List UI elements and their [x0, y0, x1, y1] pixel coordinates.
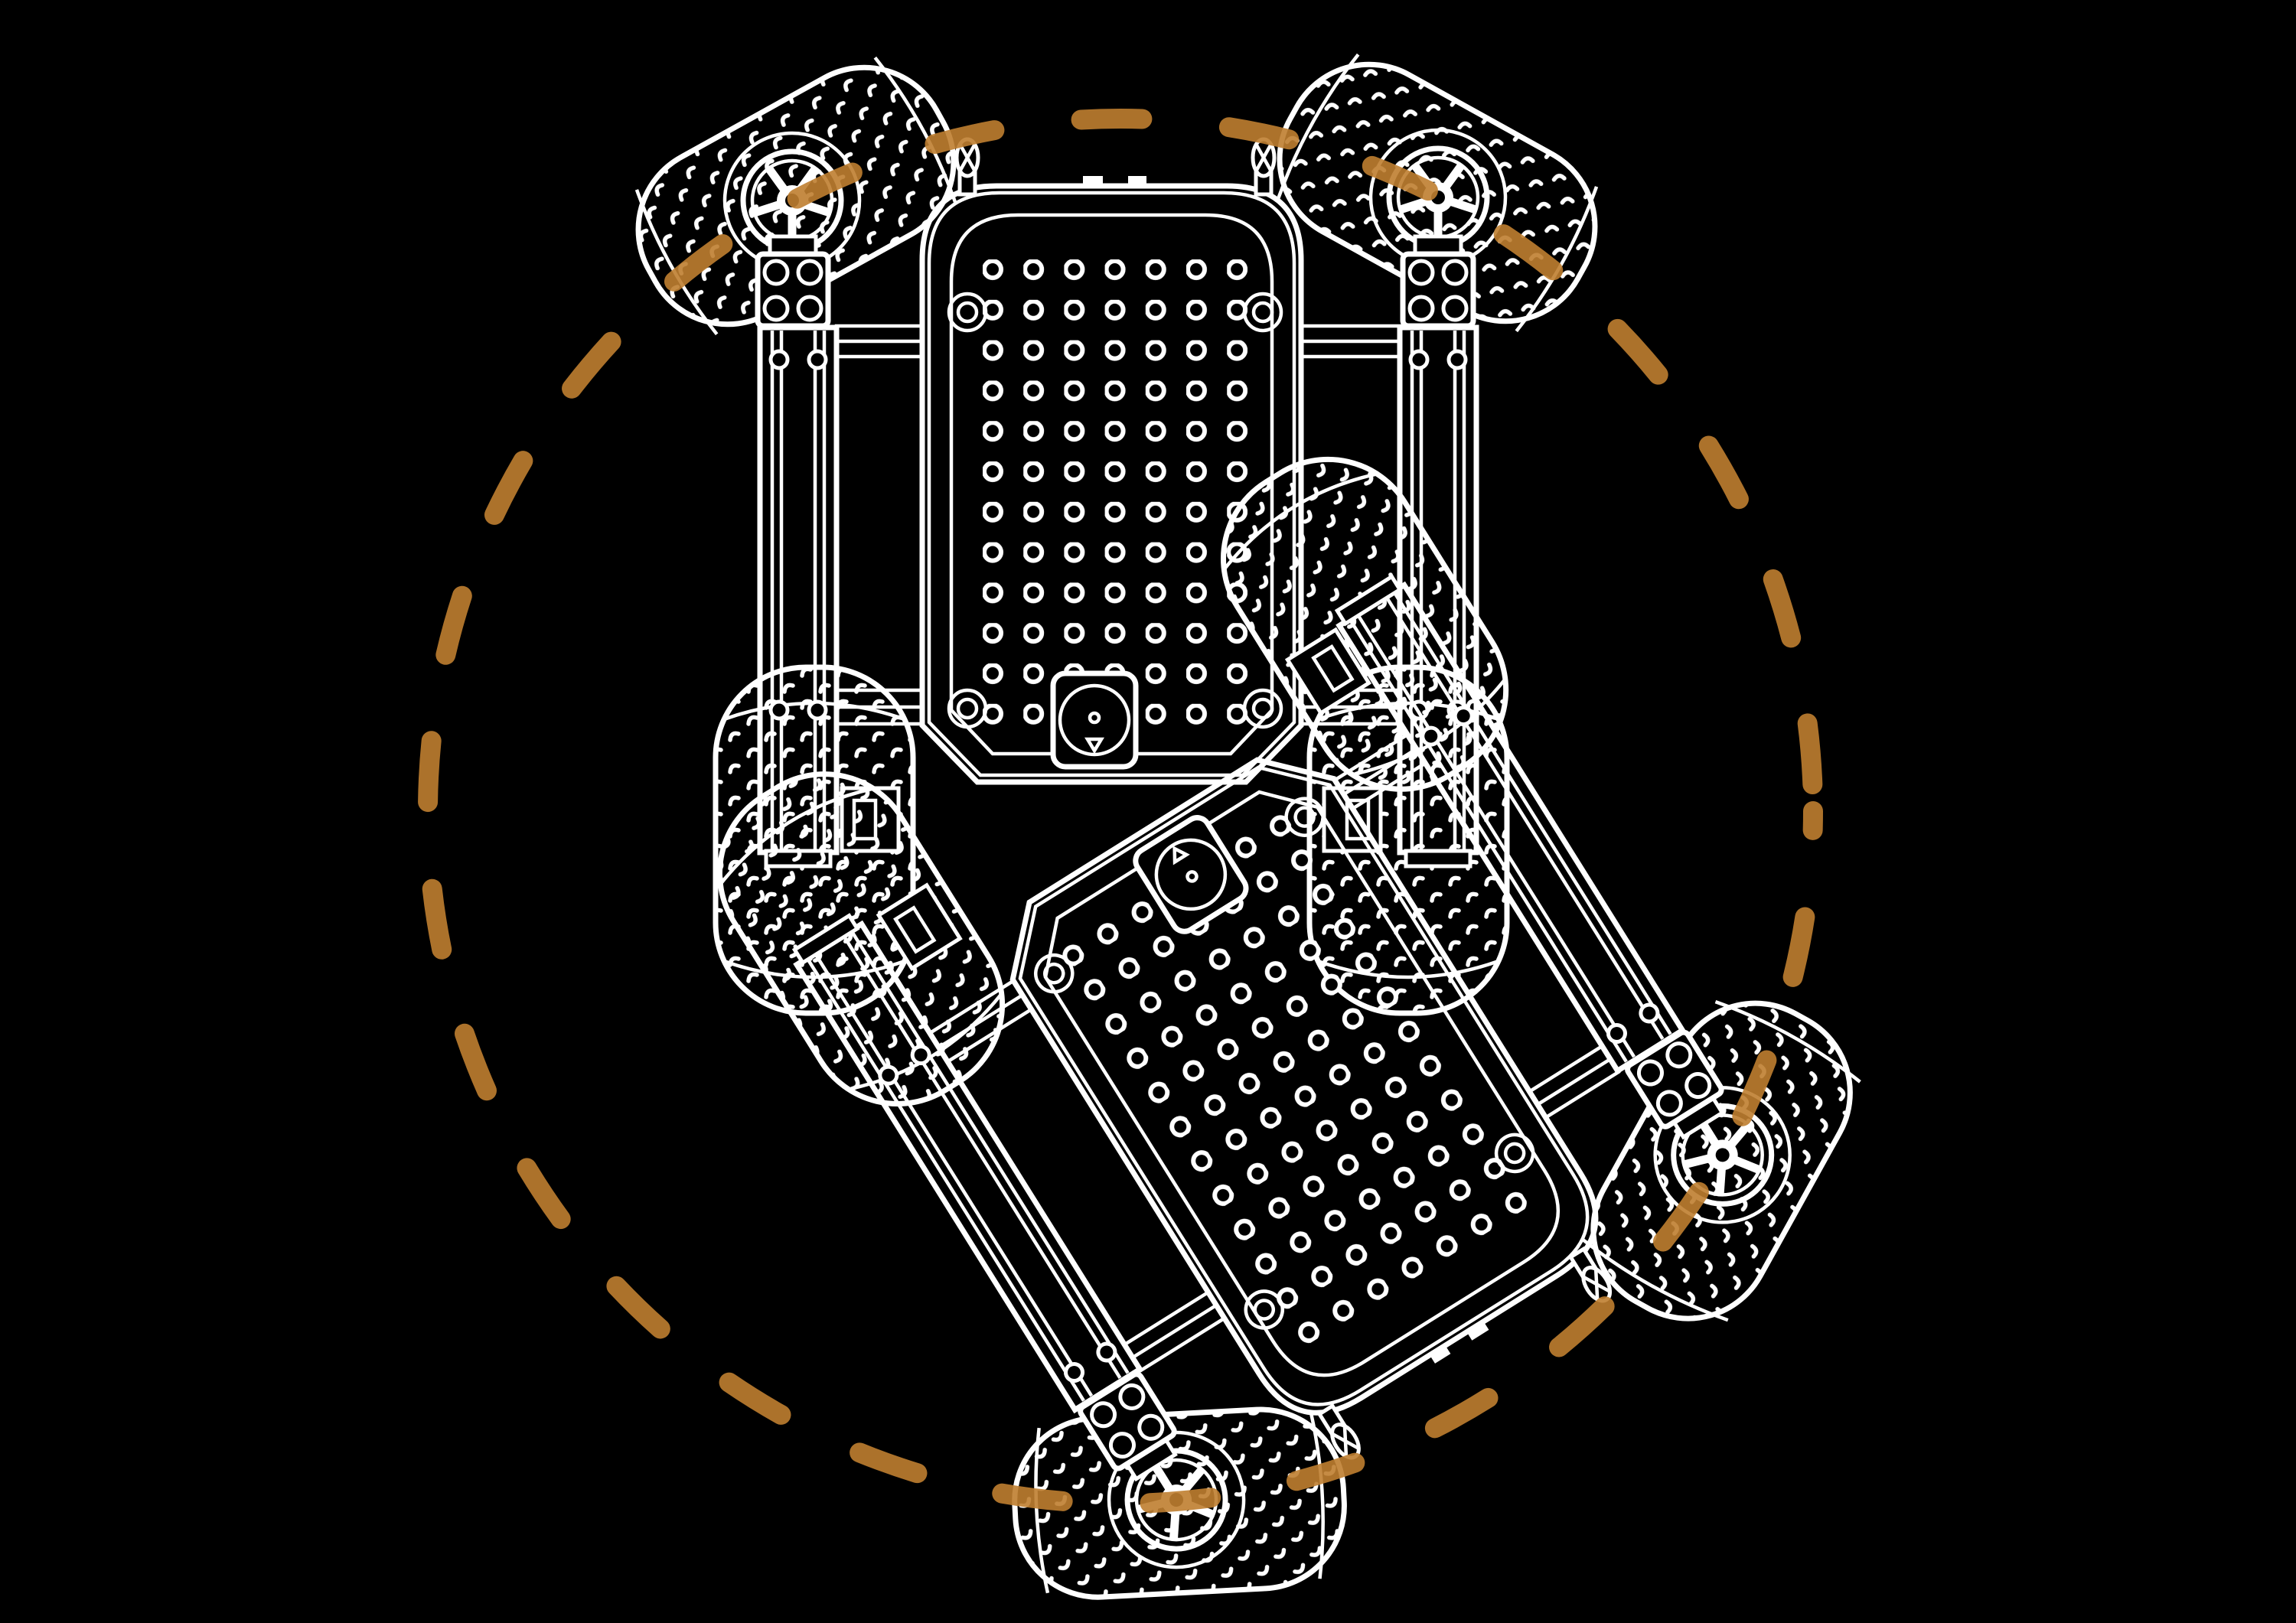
- background: [0, 0, 2296, 1623]
- rover-rotation-diagram: [0, 0, 2296, 1623]
- rotation-diagram-stage: [0, 0, 2296, 1623]
